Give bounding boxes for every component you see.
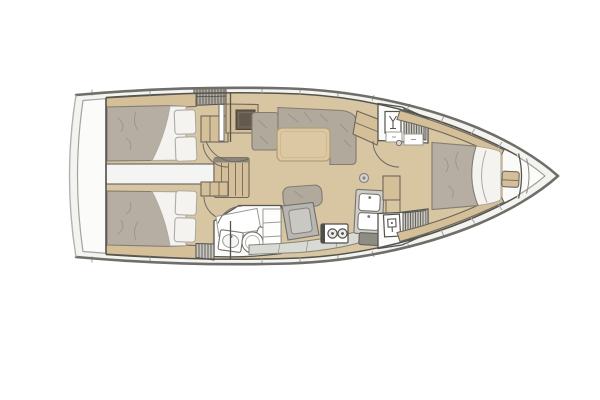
nav-station [282,203,319,241]
engine-compartment [106,164,214,184]
yacht-floor-plan-canvas [0,0,600,400]
salon-table [277,128,330,161]
bow-bench [502,171,520,187]
settee-aft-arm [252,113,278,151]
stove [321,224,348,243]
yacht-floor-plan [0,0,600,400]
shower-grate [196,244,214,261]
nav-desk-top [288,208,312,235]
berth-blanket [432,143,478,210]
icebox [359,232,381,245]
companionway-hatch [194,88,226,106]
wardrobe [201,182,228,196]
